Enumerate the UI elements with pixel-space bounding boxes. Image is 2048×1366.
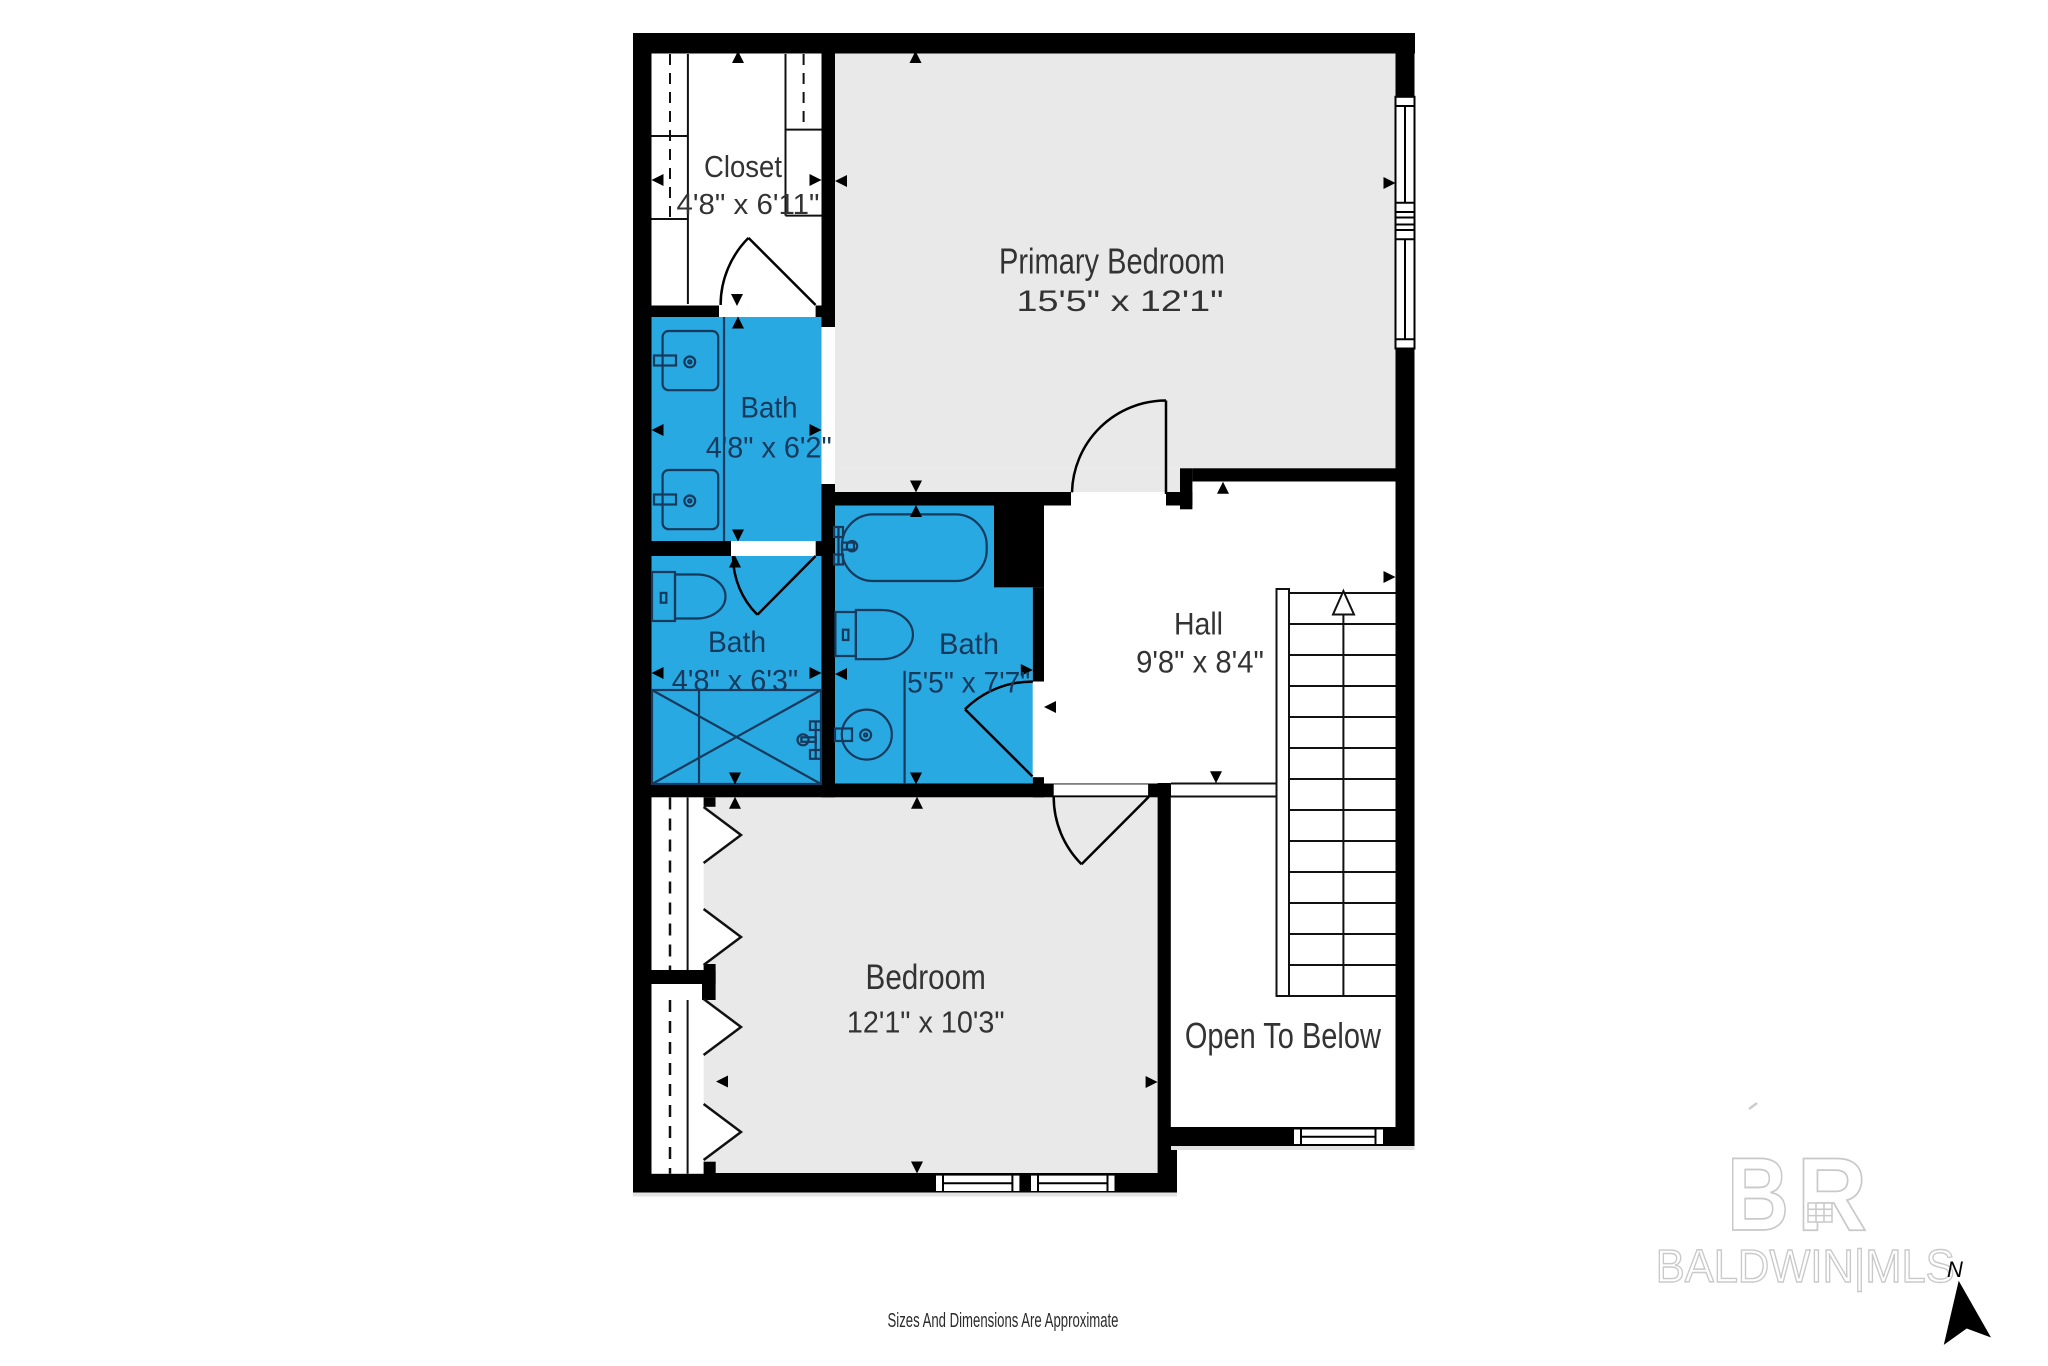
svg-text:Bath: Bath bbox=[708, 626, 766, 659]
svg-text:12'1" x 10'3": 12'1" x 10'3" bbox=[847, 1004, 1005, 1039]
svg-text:B: B bbox=[1727, 1137, 1789, 1253]
svg-text:BALDWIN|MLS: BALDWIN|MLS bbox=[1656, 1240, 1955, 1292]
svg-text:15'5" x 12'1": 15'5" x 12'1" bbox=[1017, 285, 1224, 318]
svg-text:Bedroom: Bedroom bbox=[866, 958, 986, 997]
svg-text:Closet: Closet bbox=[704, 149, 782, 184]
svg-text:Hall: Hall bbox=[1174, 605, 1223, 641]
svg-text:4'8" x 6'11": 4'8" x 6'11" bbox=[677, 189, 820, 221]
svg-text:Primary Bedroom: Primary Bedroom bbox=[999, 241, 1225, 282]
svg-text:N: N bbox=[1947, 1257, 1963, 1282]
svg-text:R: R bbox=[1797, 1137, 1867, 1253]
svg-text:Bath: Bath bbox=[741, 392, 798, 425]
svg-text:9'8" x 8'4": 9'8" x 8'4" bbox=[1136, 644, 1264, 680]
svg-text:4'8" x 6'2": 4'8" x 6'2" bbox=[706, 431, 832, 464]
svg-text:Open To Below: Open To Below bbox=[1185, 1015, 1382, 1056]
svg-text:5'5" x 7'7": 5'5" x 7'7" bbox=[907, 667, 1030, 700]
svg-text:4'8" x 6'3": 4'8" x 6'3" bbox=[672, 665, 798, 698]
svg-text:Sizes And Dimensions Are Appro: Sizes And Dimensions Are Approximate bbox=[888, 1310, 1119, 1332]
svg-text:Bath: Bath bbox=[939, 628, 999, 661]
